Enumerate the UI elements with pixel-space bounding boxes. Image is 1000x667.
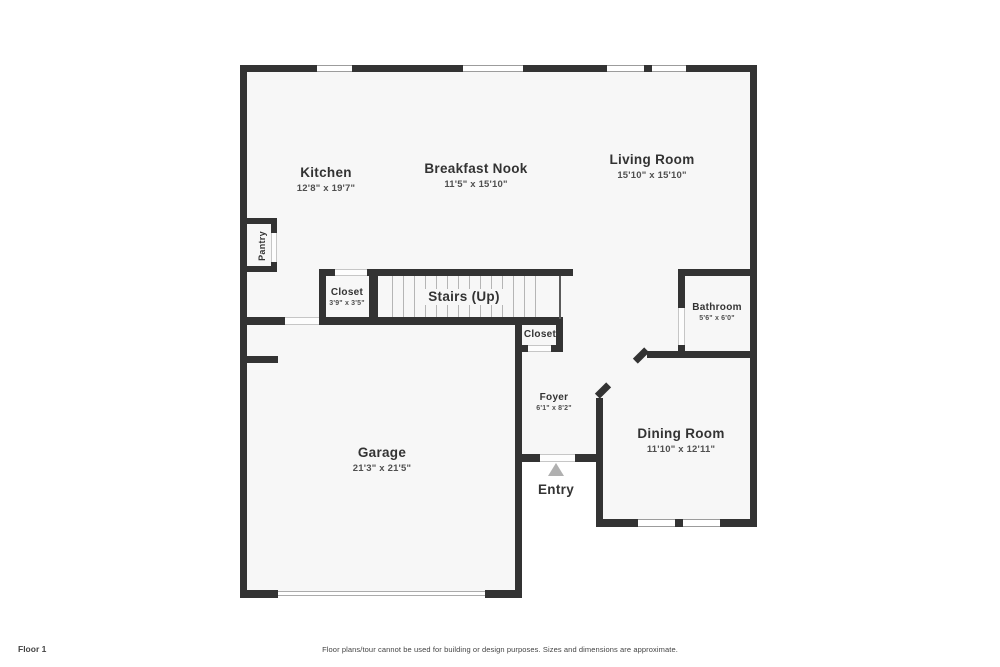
wall-segment [596,398,603,527]
wall-segment [575,454,603,462]
floor-plan-page: Kitchen 12'8" x 19'7" Breakfast Nook 11'… [0,0,1000,667]
breakfast-nook-name: Breakfast Nook [424,161,527,177]
door-opening [335,269,367,276]
wall-segment [240,590,278,598]
wall-segment [247,266,277,272]
stairs-closet-name: Closet [329,287,365,299]
wall-segment [320,317,563,325]
window [683,519,720,527]
breakfast-nook-dims: 11'5" x 15'10" [424,179,527,190]
garage-name: Garage [353,445,411,461]
entry-name: Entry [538,482,574,498]
bathroom-dims: 5'6" x 6'0" [692,315,742,322]
hall-closet-name: Closet [524,329,556,341]
garage-door [278,591,485,596]
wall-segment [675,519,683,527]
wall-segment [319,269,335,276]
window [607,65,644,72]
bathroom-name: Bathroom [692,302,742,314]
room-label-breakfast-nook: Breakfast Nook 11'5" x 15'10" [424,161,527,190]
wall-segment [515,345,528,352]
door-opening [285,317,320,325]
room-label-stairs-closet: Closet 3'9" x 3'5" [329,287,365,307]
wall-segment [378,269,573,276]
wall-segment [644,65,652,72]
wall-segment [686,65,757,72]
room-label-entry: Entry [538,482,574,498]
stairs-closet-dims: 3'9" x 3'5" [329,300,365,307]
wall-segment [240,356,278,363]
dining-room-dims: 11'10" x 12'11" [637,444,724,455]
living-room-dims: 15'10" x 15'10" [609,170,694,181]
wall-segment [678,269,685,308]
room-label-stairs: Stairs (Up) [423,289,505,305]
wall-segment [240,317,285,325]
kitchen-dims: 12'8" x 19'7" [297,183,355,194]
room-label-living-room: Living Room 15'10" x 15'10" [609,152,694,181]
garage-dims: 21'3" x 21'5" [353,463,411,474]
entry-arrow-icon [548,463,564,476]
wall-segment [369,269,378,325]
disclaimer: Floor plans/tour cannot be used for buil… [0,645,1000,654]
room-label-pantry: Pantry [257,231,267,261]
living-room-name: Living Room [609,152,694,168]
front-door-opening [540,454,575,462]
dining-room-name: Dining Room [637,426,724,442]
door-opening [271,233,277,262]
wall-segment [750,65,757,527]
wall-segment [352,65,463,72]
stair-edge-line [559,276,561,319]
room-label-hall-closet: Closet [524,329,556,341]
wall-segment [245,65,317,72]
window [652,65,686,72]
room-label-garage: Garage 21'3" x 21'5" [353,445,411,474]
wall-segment [678,269,757,276]
wall-segment [240,65,247,598]
wall-segment [523,65,607,72]
window [317,65,352,72]
room-label-foyer: Foyer 6'1" x 8'2" [536,392,572,412]
wall-segment [647,351,757,358]
foyer-name: Foyer [536,392,572,404]
wall-segment [720,519,757,527]
window [463,65,523,72]
window [638,519,675,527]
kitchen-name: Kitchen [297,165,355,181]
wall-segment [319,269,326,325]
wall-segment [551,345,563,352]
door-opening [678,308,685,345]
wall-segment [515,454,540,462]
stairs-name: Stairs (Up) [428,289,500,305]
room-label-dining-room: Dining Room 11'10" x 12'11" [637,426,724,455]
door-opening [528,345,551,352]
room-label-kitchen: Kitchen 12'8" x 19'7" [297,165,355,194]
pantry-name: Pantry [257,231,267,261]
foyer-dims: 6'1" x 8'2" [536,405,572,412]
wall-segment [271,218,277,233]
room-label-bathroom: Bathroom 5'6" x 6'0" [692,302,742,322]
